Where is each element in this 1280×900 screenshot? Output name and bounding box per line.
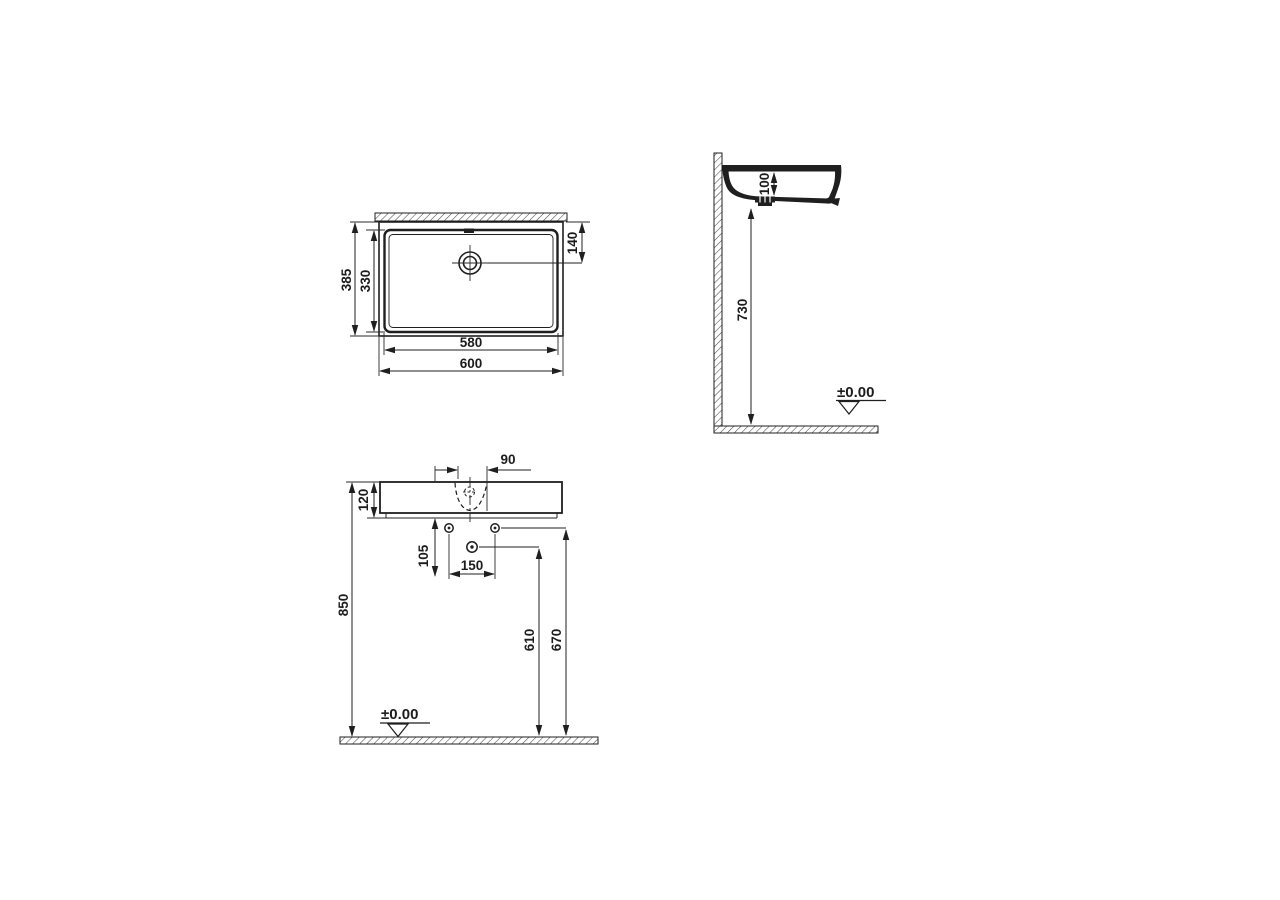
- mounting-hole-left: [445, 524, 453, 532]
- dim-drain-height: 610: [479, 547, 539, 735]
- dim-drain-offset: 140: [565, 222, 590, 262]
- top-view: 140 385 330 580 600: [339, 213, 590, 376]
- wall-hatch-strip: [375, 213, 567, 221]
- dim-drain-offset-label: 140: [565, 232, 580, 255]
- level-triangle-icon: [388, 724, 408, 737]
- basin-rim-outline: [385, 230, 558, 332]
- dim-drain-drop-label: 105: [416, 544, 431, 567]
- overflow-slot: [464, 229, 474, 234]
- dim-outer-depth-label: 385: [339, 268, 354, 291]
- floor-hatch-front: [340, 737, 598, 744]
- basin-front-outline: [380, 482, 562, 513]
- dim-drain-height-label: 610: [522, 629, 537, 652]
- dim-overall-height: 850: [336, 483, 352, 736]
- dim-rim-height-label: 120: [356, 489, 371, 512]
- dim-overall-height-label: 850: [336, 594, 351, 617]
- basin-inner-line: [389, 235, 553, 328]
- dim-inner-depth: 330: [358, 230, 385, 332]
- floor-level-mark-front: ±0.00: [380, 706, 430, 737]
- drain-fitting: [755, 197, 775, 207]
- dim-inner-depth-label: 330: [358, 270, 373, 293]
- dim-basin-depth: 100: [757, 173, 774, 196]
- dim-basin-depth-label: 100: [757, 173, 772, 196]
- dim-hole-height-label: 670: [549, 629, 564, 652]
- drawing-canvas: 140 385 330 580 600: [0, 0, 1280, 900]
- tap-hole-hidden: [463, 487, 476, 497]
- drain-hole-front: [467, 542, 477, 552]
- side-view: 100 730 ±0.00: [714, 153, 886, 433]
- dim-clearance-height: 730: [735, 209, 751, 424]
- dim-hole-spacing: 150: [449, 534, 495, 579]
- front-view: 105 90 150: [336, 452, 598, 744]
- dim-outer-width-label: 600: [460, 356, 483, 371]
- floor-level-mark-side: ±0.00: [836, 384, 886, 414]
- floor-level-label-front: ±0.00: [381, 706, 418, 723]
- floor-hatch-section: [714, 426, 878, 433]
- dim-clearance-height-label: 730: [735, 299, 750, 322]
- floor-level-label-side: ±0.00: [837, 384, 874, 401]
- wall-hatch-section: [714, 153, 722, 433]
- dim-inner-width-label: 580: [460, 335, 483, 350]
- basin-outer-outline: [379, 222, 563, 336]
- dim-tap-recess-width-label: 90: [500, 452, 515, 467]
- mounting-hole-right: [491, 524, 499, 532]
- basin-rear-foot: [830, 198, 840, 206]
- dim-hole-spacing-label: 150: [461, 558, 484, 573]
- technical-drawing: 140 385 330 580 600: [0, 0, 1280, 900]
- level-triangle-icon: [839, 402, 859, 415]
